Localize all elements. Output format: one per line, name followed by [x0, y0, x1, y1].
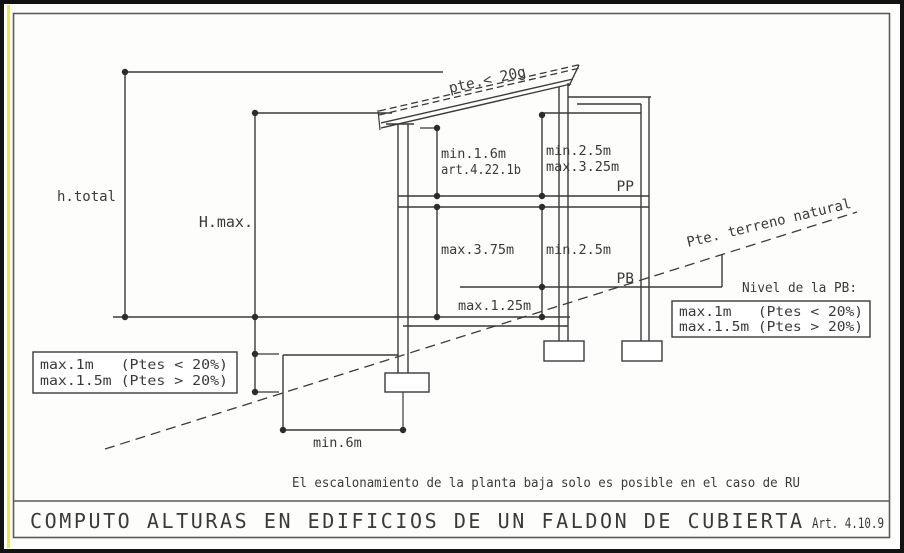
footing: [622, 341, 662, 361]
h-total-label: h.total: [57, 189, 116, 205]
pp-max-height-label: max.3.25m: [546, 159, 619, 175]
min-width-label: min.6m: [313, 435, 362, 451]
terrain-slope-label: Pte. terreno natural: [685, 196, 853, 251]
title-article: Art. 4.10.9: [812, 516, 884, 532]
section-drawing: h.total H.max. pte.< 20g min.1.6m art.4.…: [4, 4, 900, 549]
pp-min-height-label: min.2.5m: [546, 143, 611, 159]
attic-height-label: min.1.6m: [441, 146, 506, 162]
building-section: [283, 65, 662, 392]
pb-min-height-label: min.2.5m: [546, 242, 611, 258]
footing: [385, 373, 429, 392]
title-text: COMPUTO ALTURAS EN EDIFICIOS DE UN FALDO…: [30, 509, 802, 533]
pb-label: PB: [617, 271, 635, 287]
step-rule-line1: max.1m (Ptes < 20%): [40, 357, 228, 373]
pb-level-heading: Nivel de la PB:: [742, 280, 857, 296]
pb-level-line: [460, 255, 722, 287]
drawing-sheet: h.total H.max. pte.< 20g min.1.6m art.4.…: [0, 0, 904, 553]
h-max-label: H.max.: [199, 213, 253, 231]
step-rule-line2: max.1.5m (Ptes > 20%): [40, 373, 228, 389]
pb-level-rule-line2: max.1.5m (Ptes > 20%): [679, 320, 863, 335]
pp-label: PP: [617, 179, 635, 195]
pb-step-label: max.1.25m: [458, 298, 531, 314]
footing: [544, 341, 584, 361]
pb-max-height-label: max.3.75m: [441, 242, 514, 258]
pb-level-rule-line1: max.1m (Ptes < 20%): [679, 305, 863, 320]
note-text: El escalonamiento de la planta baja solo…: [292, 475, 800, 491]
attic-article-label: art.4.22.1b: [441, 162, 521, 178]
